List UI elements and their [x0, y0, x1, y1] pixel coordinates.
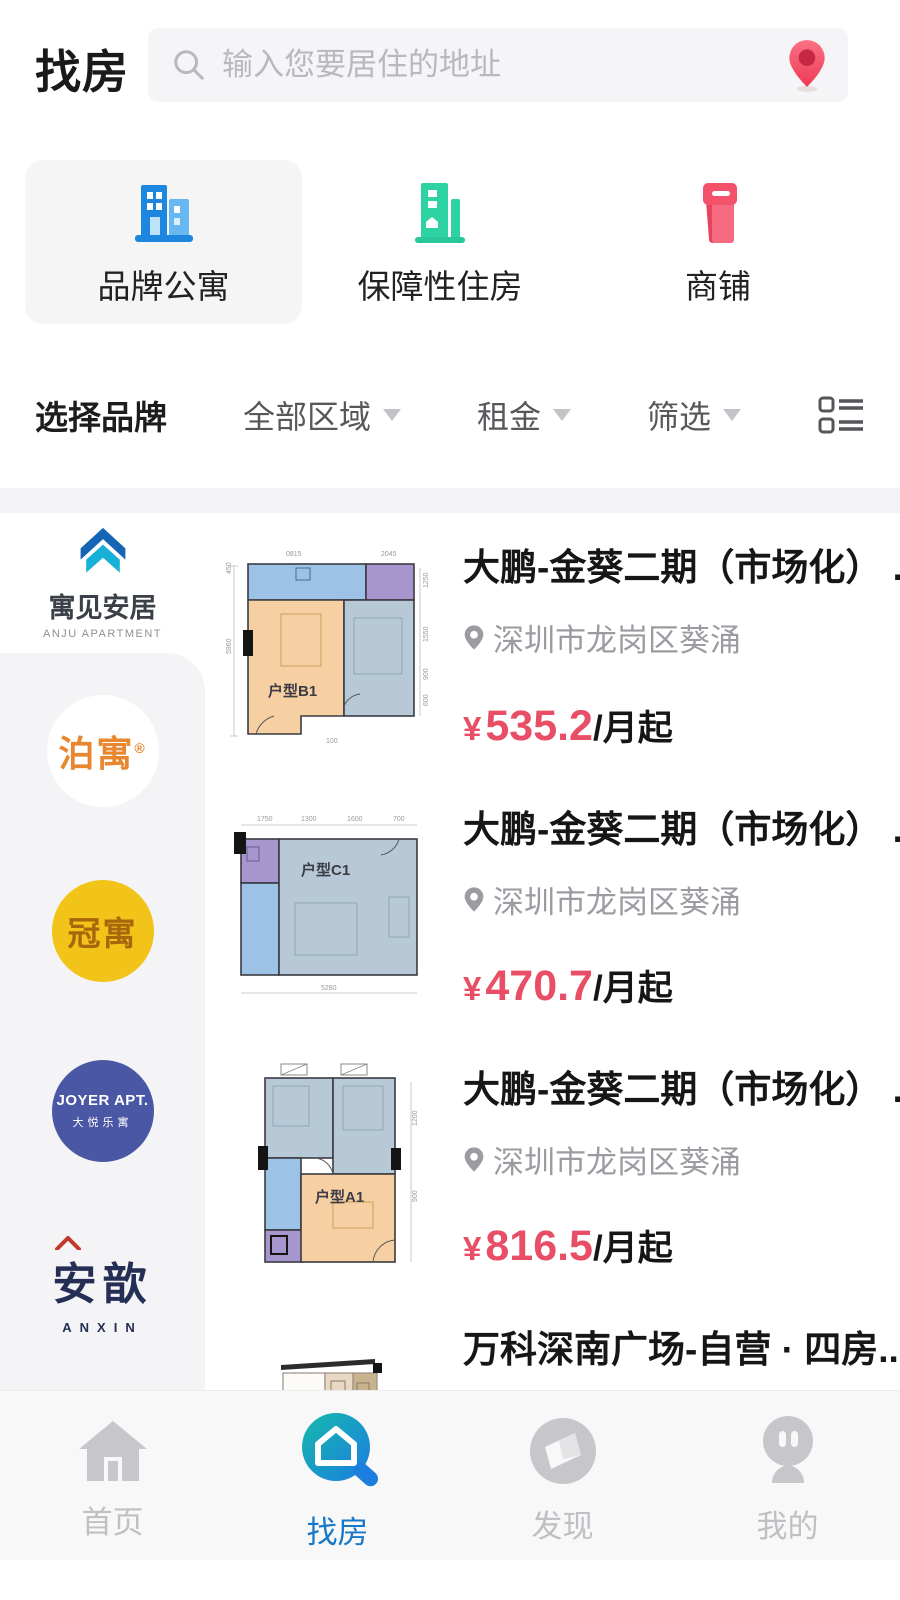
- listing-card[interactable]: 万科深南广场-自营 · 四房...: [205, 1295, 900, 1390]
- sidebar-brand-anxin[interactable]: 安歆 ANXIN: [0, 1201, 205, 1381]
- location-pin-icon[interactable]: [786, 38, 828, 92]
- listing-price: ¥ 470.7 /月起: [463, 960, 900, 1011]
- listing-title: 大鹏-金葵二期（市场化） ...: [463, 1059, 900, 1113]
- person-icon: [748, 1411, 828, 1491]
- brand-list: 泊寓® 冠寓 JOYER APT. 大悦乐寓 安歆: [0, 653, 205, 1390]
- location-text: 深圳市龙岗区葵涌: [493, 1137, 741, 1182]
- page-title: 找房: [35, 36, 129, 102]
- listing-cards: 0815 2045 5960 450 1250 1550: [205, 513, 900, 1390]
- listing-area: 寓见安居 ANJU APARTMENT 泊寓® 冠寓 JOYER APT. 大悦…: [0, 513, 900, 1390]
- listing-card[interactable]: 1750 1300 1600 700 5280 户型C1: [205, 775, 900, 1035]
- brand-subtitle: ANXIN: [62, 1320, 142, 1335]
- category-label: 商铺: [685, 260, 751, 308]
- svg-text:1750: 1750: [257, 816, 273, 823]
- compass-icon: [523, 1411, 603, 1491]
- svg-text:2045: 2045: [381, 551, 397, 558]
- price-unit: /月起: [593, 1220, 673, 1271]
- listing-info: 大鹏-金葵二期（市场化） ... 深圳市龙岗区葵涌 ¥ 470.7 /月起: [455, 775, 900, 1035]
- category-label: 保障性住房: [358, 260, 523, 308]
- listing-info: 大鹏-金葵二期（市场化） ... 深圳市龙岗区葵涌 ¥ 816.5 /月起: [455, 1035, 900, 1295]
- listing-card[interactable]: 1200 900 户型A1 大鹏-金葵二期（市场化） ... 深圳市龙岗区葵涌 …: [205, 1035, 900, 1295]
- tab-discover[interactable]: 发现: [450, 1391, 675, 1560]
- svg-text:1550: 1550: [423, 626, 430, 642]
- svg-text:户型B1: 户型B1: [268, 682, 317, 700]
- brand-name: 安歆: [53, 1248, 153, 1312]
- svg-text:户型A1: 户型A1: [315, 1188, 364, 1206]
- currency-symbol: ¥: [463, 970, 481, 1008]
- price-unit: /月起: [593, 700, 673, 751]
- currency-symbol: ¥: [463, 1230, 481, 1268]
- svg-text:1300: 1300: [301, 816, 317, 823]
- dropdown-region-label: 全部区域: [243, 392, 371, 438]
- category-label: 品牌公寓: [98, 260, 230, 308]
- category-public-housing[interactable]: 保障性住房: [290, 160, 590, 324]
- category-shops[interactable]: 商铺: [598, 160, 838, 324]
- svg-text:600: 600: [423, 694, 430, 706]
- listing-info: 大鹏-金葵二期（市场化） ... 深圳市龙岗区葵涌 ¥ 535.2 /月起: [455, 513, 900, 775]
- chevron-down-icon: [553, 409, 571, 421]
- svg-text:1250: 1250: [423, 572, 430, 588]
- location-text: 深圳市龙岗区葵涌: [493, 615, 741, 660]
- select-brand-button[interactable]: 选择品牌: [35, 391, 167, 439]
- listing-title: 大鹏-金葵二期（市场化） ...: [463, 799, 900, 853]
- find-house-icon: [292, 1405, 384, 1497]
- price-value: 535.2: [485, 702, 593, 751]
- dropdown-rent[interactable]: 租金: [477, 392, 571, 438]
- anju-logo-icon: [73, 526, 133, 582]
- floorplan-image: 1750 1300 1600 700 5280 户型C1: [205, 775, 455, 1035]
- bottom-tab-bar: 首页 找房 发现 我的: [0, 1390, 900, 1560]
- svg-text:户型C1: 户型C1: [301, 861, 350, 879]
- listing-info: 万科深南广场-自营 · 四房...: [455, 1295, 900, 1390]
- dropdown-rent-label: 租金: [477, 392, 541, 438]
- chevron-down-icon: [383, 409, 401, 421]
- section-divider: [0, 488, 900, 513]
- listing-price: ¥ 535.2 /月起: [463, 700, 900, 751]
- green-building-icon: [401, 176, 479, 248]
- location-text: 深圳市龙岗区葵涌: [493, 877, 741, 922]
- brand-subtitle: 大悦乐寓: [73, 1114, 133, 1130]
- svg-text:5960: 5960: [226, 638, 233, 654]
- price-value: 470.7: [485, 962, 593, 1011]
- svg-text:5280: 5280: [321, 985, 337, 992]
- currency-symbol: ¥: [463, 710, 481, 748]
- brand-name: 寓见安居: [49, 586, 157, 625]
- registered-mark: ®: [134, 740, 146, 756]
- filter-bar: 选择品牌 全部区域 租金 筛选: [35, 392, 865, 438]
- tab-find-house[interactable]: 找房: [225, 1391, 450, 1560]
- search-bar[interactable]: [148, 28, 848, 102]
- buildings-icon: [125, 176, 203, 248]
- price-unit: /月起: [593, 960, 673, 1011]
- svg-text:450: 450: [226, 562, 233, 574]
- dropdown-region[interactable]: 全部区域: [243, 392, 401, 438]
- category-brand-apartment[interactable]: 品牌公寓: [25, 160, 302, 324]
- tab-home[interactable]: 首页: [0, 1391, 225, 1560]
- svg-text:100: 100: [326, 738, 338, 745]
- brand-name: JOYER APT.: [57, 1092, 149, 1109]
- tab-label: 发现: [532, 1501, 594, 1546]
- floorplan-image: [205, 1295, 455, 1390]
- shop-icon: [679, 176, 757, 248]
- pin-icon: [463, 624, 485, 651]
- svg-text:900: 900: [412, 1190, 419, 1202]
- sidebar-brand-boyu[interactable]: 泊寓®: [0, 661, 205, 841]
- anxin-roof-icon: [55, 1236, 81, 1250]
- svg-text:1600: 1600: [347, 816, 363, 823]
- floorplan-image: 1200 900 户型A1: [205, 1035, 455, 1295]
- tab-label: 首页: [82, 1497, 144, 1542]
- listing-card[interactable]: 0815 2045 5960 450 1250 1550: [205, 513, 900, 775]
- category-tabs: 品牌公寓 保障性住房 商铺: [0, 160, 900, 326]
- listing-title: 万科深南广场-自营 · 四房...: [463, 1319, 900, 1373]
- tab-label: 我的: [757, 1501, 819, 1546]
- chevron-down-icon: [723, 409, 741, 421]
- sidebar-brand-joyer[interactable]: JOYER APT. 大悦乐寓: [0, 1021, 205, 1201]
- search-input[interactable]: [222, 47, 786, 83]
- listing-location: 深圳市龙岗区葵涌: [463, 615, 900, 660]
- listing-title: 大鹏-金葵二期（市场化） ...: [463, 537, 900, 591]
- tab-label: 找房: [307, 1507, 369, 1552]
- home-icon: [73, 1415, 153, 1487]
- brand-name: 泊寓: [58, 733, 134, 774]
- listing-location: 深圳市龙岗区葵涌: [463, 877, 900, 922]
- tab-mine[interactable]: 我的: [675, 1391, 900, 1560]
- dropdown-filter-label: 筛选: [647, 392, 711, 438]
- svg-text:1200: 1200: [412, 1110, 419, 1126]
- pin-icon: [463, 1146, 485, 1173]
- dropdown-filter[interactable]: 筛选: [647, 392, 741, 438]
- listing-price: ¥ 816.5 /月起: [463, 1220, 900, 1271]
- search-icon: [172, 48, 206, 82]
- svg-text:900: 900: [423, 668, 430, 680]
- svg-text:700: 700: [393, 816, 405, 823]
- list-view-icon[interactable]: [817, 394, 865, 436]
- floorplan-image: 0815 2045 5960 450 1250 1550: [205, 513, 455, 775]
- svg-text:0815: 0815: [286, 551, 302, 558]
- sidebar-brand-guanyu[interactable]: 冠寓: [0, 841, 205, 1021]
- pin-icon: [463, 886, 485, 913]
- sidebar-brand-anju[interactable]: 寓见安居 ANJU APARTMENT: [0, 513, 205, 653]
- brand-sidebar: 寓见安居 ANJU APARTMENT 泊寓® 冠寓 JOYER APT. 大悦…: [0, 513, 205, 1390]
- price-value: 816.5: [485, 1222, 593, 1271]
- brand-subtitle: ANJU APARTMENT: [43, 628, 162, 640]
- listing-location: 深圳市龙岗区葵涌: [463, 1137, 900, 1182]
- brand-name: 冠寓: [68, 907, 138, 955]
